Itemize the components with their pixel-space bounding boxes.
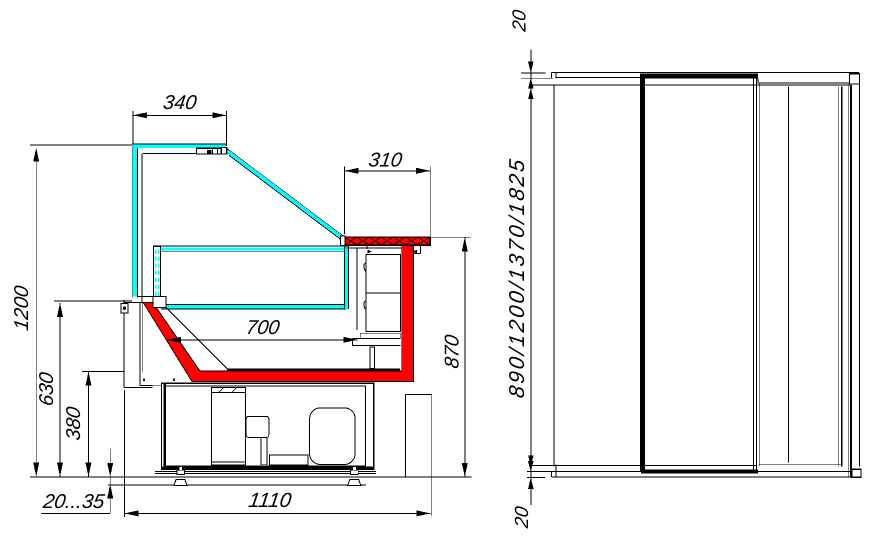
svg-text:20...35: 20...35 — [41, 491, 107, 513]
svg-text:870: 870 — [442, 333, 464, 369]
svg-text:20: 20 — [510, 8, 531, 33]
svg-text:700: 700 — [245, 317, 281, 339]
svg-text:1200: 1200 — [11, 284, 33, 332]
svg-text:340: 340 — [162, 92, 198, 114]
svg-text:20: 20 — [512, 505, 533, 530]
svg-text:890/1200/1370/1825: 890/1200/1370/1825 — [504, 156, 529, 400]
svg-text:380: 380 — [63, 405, 85, 441]
svg-text:1110: 1110 — [247, 489, 293, 512]
svg-text:630: 630 — [36, 371, 58, 407]
svg-text:310: 310 — [367, 150, 403, 172]
